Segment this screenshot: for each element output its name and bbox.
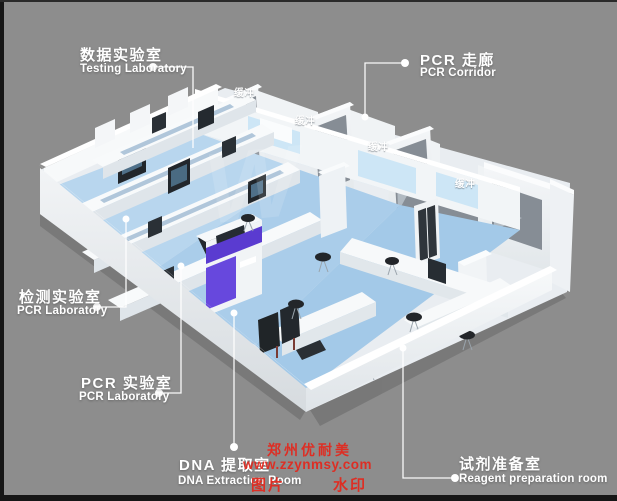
label-testing-lab-zh: 数据实验室 xyxy=(80,44,163,65)
frame-edge-bottom xyxy=(0,495,617,501)
label-testing-lab-en: Testing Laboratory xyxy=(80,63,187,75)
buffer-room-tag: 缓冲 xyxy=(455,176,476,190)
buffer-room-tag: 缓冲 xyxy=(295,113,316,127)
frame-edge-left xyxy=(0,0,4,501)
label-reagent-room-en: Reagent preparation room xyxy=(459,473,608,485)
leader-pcr-corridor xyxy=(365,63,405,114)
frame-edge-top xyxy=(0,0,617,2)
label-pcr-lab2-en: PCR Laboratory xyxy=(79,391,169,403)
label-reagent-room-zh: 试剂准备室 xyxy=(459,453,542,474)
pcr-lab-floorplan-image: W 缓冲 缓冲 缓冲 缓冲 数据实验室 Testing Laboratory P… xyxy=(0,0,617,501)
buffer-room-tag: 缓冲 xyxy=(234,85,255,99)
watermark-tag-right: 水印 xyxy=(333,474,367,495)
east-corner-post xyxy=(550,179,574,292)
watermark-url: www.zzynmsy.com xyxy=(243,457,372,472)
label-pcr-corridor-en: PCR Corridor xyxy=(420,67,496,79)
label-pcr-lab-en: PCR Laboratory xyxy=(17,305,107,317)
watermark-tag-left: 图片 xyxy=(251,474,285,495)
buffer-room-tag: 缓冲 xyxy=(368,139,389,153)
label-pcr-lab2-zh: PCR 实验室 xyxy=(81,372,172,393)
label-pcr-lab-zh: 检测实验室 xyxy=(19,286,102,307)
lab-3d-scene xyxy=(0,0,617,501)
